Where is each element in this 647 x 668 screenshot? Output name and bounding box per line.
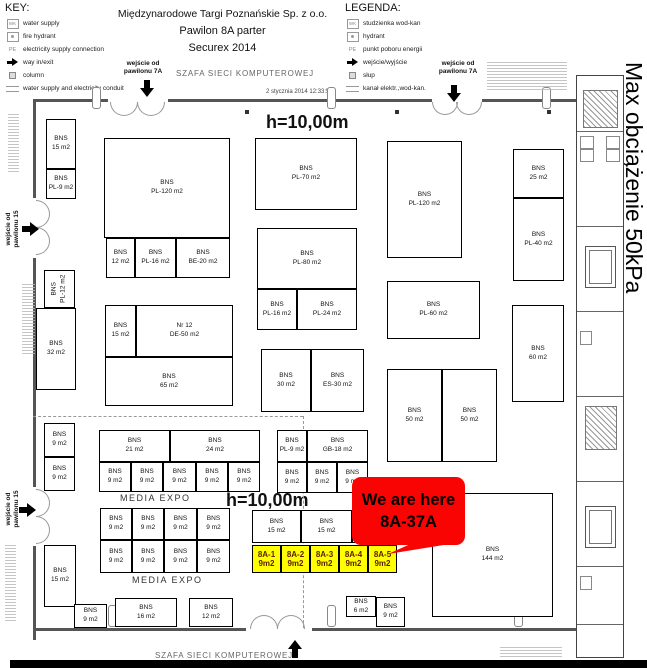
legend-item-label: studzienka wod-kan	[363, 20, 420, 27]
door-arc	[277, 615, 305, 629]
electricity-icon: PE	[345, 45, 360, 55]
legend-item-label: słup	[363, 72, 375, 79]
margin-fine-print	[8, 114, 19, 174]
booth: BNS15 m2	[44, 545, 76, 607]
conduit-icon	[5, 84, 20, 94]
booth: BNS65 m2	[105, 357, 233, 406]
we-are-here-callout: We are here 8A-37A	[352, 477, 465, 545]
highlight-booth-8A-2: 8A-29m2	[281, 545, 310, 573]
booth: BNS15 m2	[46, 119, 76, 169]
legend-item-label: hydrant	[363, 33, 385, 40]
booth: BNSGB-18 m2	[307, 430, 368, 462]
max-load-label: Max obciążenie 50kPa	[620, 62, 647, 362]
entrance-arrow-icon	[5, 58, 20, 68]
booth: BNSPL-70 m2	[255, 138, 357, 210]
szafa-label-top: SZAFA SIECI KOMPUTEROWEJ	[176, 69, 314, 78]
booth: BNS9 m2	[132, 540, 164, 573]
booth: BNS9 m2	[164, 540, 197, 573]
szafa-label-bottom: SZAFA SIECI KOMPUTEROWEJ	[155, 651, 293, 660]
entrance-arrow-top-2	[447, 85, 461, 102]
conduit-icon	[345, 84, 360, 94]
legend-item-label: column	[23, 72, 44, 79]
legend-item-label: punkt poboru energii	[363, 46, 422, 53]
legend-item-label: water supply and electricity conduit	[23, 85, 124, 92]
entrance-arrow-icon	[345, 58, 360, 68]
height-label-mid: h=10,00m	[226, 490, 309, 511]
callout-line-2: 8A-37A	[380, 513, 437, 532]
side-rooms-floorplan	[576, 75, 624, 658]
booth: BNS6 m2	[346, 596, 376, 617]
door-arc	[250, 615, 278, 629]
zone-dashed-line	[33, 416, 303, 417]
booth: BNSES-30 m2	[311, 349, 364, 412]
highlight-booth-8A-4: 8A-49m2	[339, 545, 368, 573]
wall-left	[33, 546, 36, 640]
booth: BNS24 m2	[170, 430, 260, 462]
lift	[585, 246, 616, 288]
booth: BNSPL-16 m2	[257, 289, 297, 330]
stairs	[585, 406, 617, 450]
electricity-icon: PE	[5, 45, 20, 55]
column-icon	[345, 71, 360, 81]
legend-item: PEpunkt poboru energii	[345, 43, 535, 56]
highlight-booth-8A-1: 8A-19m2	[252, 545, 281, 573]
door-arc	[137, 102, 165, 116]
door-arc	[36, 516, 50, 544]
booth: BNS9 m2	[196, 462, 228, 492]
booth: BNS9 m2	[44, 423, 75, 457]
booth: BNS30 m2	[261, 349, 311, 412]
page-title: Międzynarodowe Targi Poznańskie Sp. z o.…	[105, 8, 340, 54]
booth: BNS9 m2	[100, 508, 132, 540]
booth: BNS9 m2	[277, 462, 307, 493]
title-line-3: Securex 2014	[105, 42, 340, 54]
stairs	[583, 90, 618, 128]
booth: BNS12 m2	[189, 598, 233, 627]
booth: BNS9 m2	[74, 604, 107, 628]
booth: BNSPL-60 m2	[387, 281, 480, 339]
booth: BNS15 m2	[105, 305, 136, 357]
legend-item-label: water supply	[23, 20, 60, 27]
door-arc	[36, 489, 50, 517]
column-marker	[245, 110, 249, 114]
entrance-arrow-left-2	[19, 503, 36, 517]
timestamp: 2 stycznia 2014 12:33:50	[266, 89, 333, 95]
booth: BNS9 m2	[228, 462, 260, 492]
legend-item: water supply and electricity conduit	[5, 82, 155, 95]
margin-fine-print	[22, 284, 35, 356]
booth: BNS50 m2	[387, 369, 442, 462]
booth: BNSPL-12 m2	[44, 270, 75, 308]
booth: BNS9 m2	[44, 457, 75, 491]
booth: BNS60 m2	[512, 305, 564, 402]
booth: BNS16 m2	[115, 598, 177, 627]
fire-hydrant-icon	[345, 32, 360, 42]
title-block-fine-print	[487, 62, 567, 92]
wall-bottom	[33, 628, 246, 631]
wall-top	[168, 99, 432, 102]
water-supply-icon: WK	[5, 19, 20, 29]
booth: BNS21 m2	[99, 430, 170, 462]
pilaster	[92, 87, 101, 109]
entrance-label-top-2: wejście od pawilonu 7A	[428, 60, 488, 76]
title-line-2: Pawilon 8A parter	[105, 25, 340, 37]
booth: BNS15 m2	[252, 510, 301, 543]
booth: BNS9 m2	[197, 508, 230, 540]
legend-item-label: kanał elektr.,wod-kan.	[363, 85, 426, 92]
column-marker	[547, 110, 551, 114]
pilaster	[327, 605, 336, 627]
booth: BNSPL-9 m2	[277, 430, 307, 462]
booth: BNSPL-16 m2	[135, 238, 176, 278]
booth: BNSPL-120 m2	[104, 138, 230, 238]
entrance-label-left-1: wejście od pawilonu 15	[5, 206, 21, 252]
booth: BNSPL-120 m2	[387, 141, 462, 258]
title-line-1: Międzynarodowe Targi Poznańskie Sp. z o.…	[105, 8, 340, 20]
legend-item-label: way in/exit	[23, 59, 53, 66]
booth: BNS9 m2	[307, 462, 337, 493]
booth: Nr 12DE-50 m2	[136, 305, 233, 357]
entrance-arrow-bottom	[288, 641, 302, 658]
wall-left	[33, 99, 36, 198]
legend-item: WKstudzienka wod-kan	[345, 17, 535, 30]
legend-item: hydrant	[345, 30, 535, 43]
margin-fine-print	[5, 545, 16, 623]
callout-line-1: We are here	[362, 491, 455, 510]
booth: BNS32 m2	[36, 308, 76, 390]
booth: BNS9 m2	[131, 462, 163, 492]
legend-item-label: fire hydrant	[23, 33, 56, 40]
floor-plan-page: KEY: WKwater supplyfire hydrantPEelectri…	[0, 0, 647, 668]
pilaster	[327, 87, 336, 109]
booth: BNSBE-20 m2	[176, 238, 230, 278]
highlight-booth-8A-5: 8A-59m2	[368, 545, 397, 573]
booth: BNS9 m2	[100, 540, 132, 573]
booth: BNSPL-80 m2	[257, 228, 357, 289]
legend-item-label: electricity supply connection	[23, 46, 104, 53]
column-icon	[5, 71, 20, 81]
booth: BNS12 m2	[106, 238, 135, 278]
column-marker	[395, 110, 399, 114]
entrance-arrow-left-1	[22, 222, 39, 236]
door-arc	[432, 102, 458, 115]
booth: BNS50 m2	[442, 369, 497, 462]
booth: BNS9 m2	[197, 540, 230, 573]
entrance-arrow-top-1	[140, 80, 154, 97]
entrance-label-top-1: wejście od pawilonu 7A	[112, 60, 174, 76]
booth: BNS9 m2	[376, 597, 405, 627]
water-supply-icon: WK	[345, 19, 360, 29]
booth: BNS15 m2	[301, 510, 352, 543]
media-expo-label-top: MEDIA EXPO	[120, 493, 191, 503]
booth: BNSPL-40 m2	[513, 198, 564, 281]
footer-fine-print	[500, 647, 562, 659]
lift	[585, 506, 616, 548]
booth: BNS9 m2	[163, 462, 196, 492]
wall-bottom	[312, 628, 576, 631]
legend-item-label: wejście/wyjście	[363, 59, 407, 66]
booth: BNS9 m2	[164, 508, 197, 540]
media-expo-label-bottom: MEDIA EXPO	[132, 575, 203, 585]
bottom-black-bar	[10, 660, 647, 668]
booth: BNS9 m2	[132, 508, 164, 540]
booth: BNSPL-9 m2	[46, 169, 76, 199]
legend-title: LEGENDA:	[345, 2, 535, 14]
door-arc	[456, 102, 482, 115]
booth: BNS25 m2	[513, 149, 564, 198]
booth: BNS9 m2	[99, 462, 131, 492]
highlight-booth-8A-3: 8A-39m2	[310, 545, 339, 573]
fire-hydrant-icon	[5, 32, 20, 42]
height-label-top: h=10,00m	[266, 112, 349, 133]
door-arc	[110, 102, 138, 116]
wall-top	[482, 99, 576, 102]
booth: BNSPL-24 m2	[297, 289, 357, 330]
